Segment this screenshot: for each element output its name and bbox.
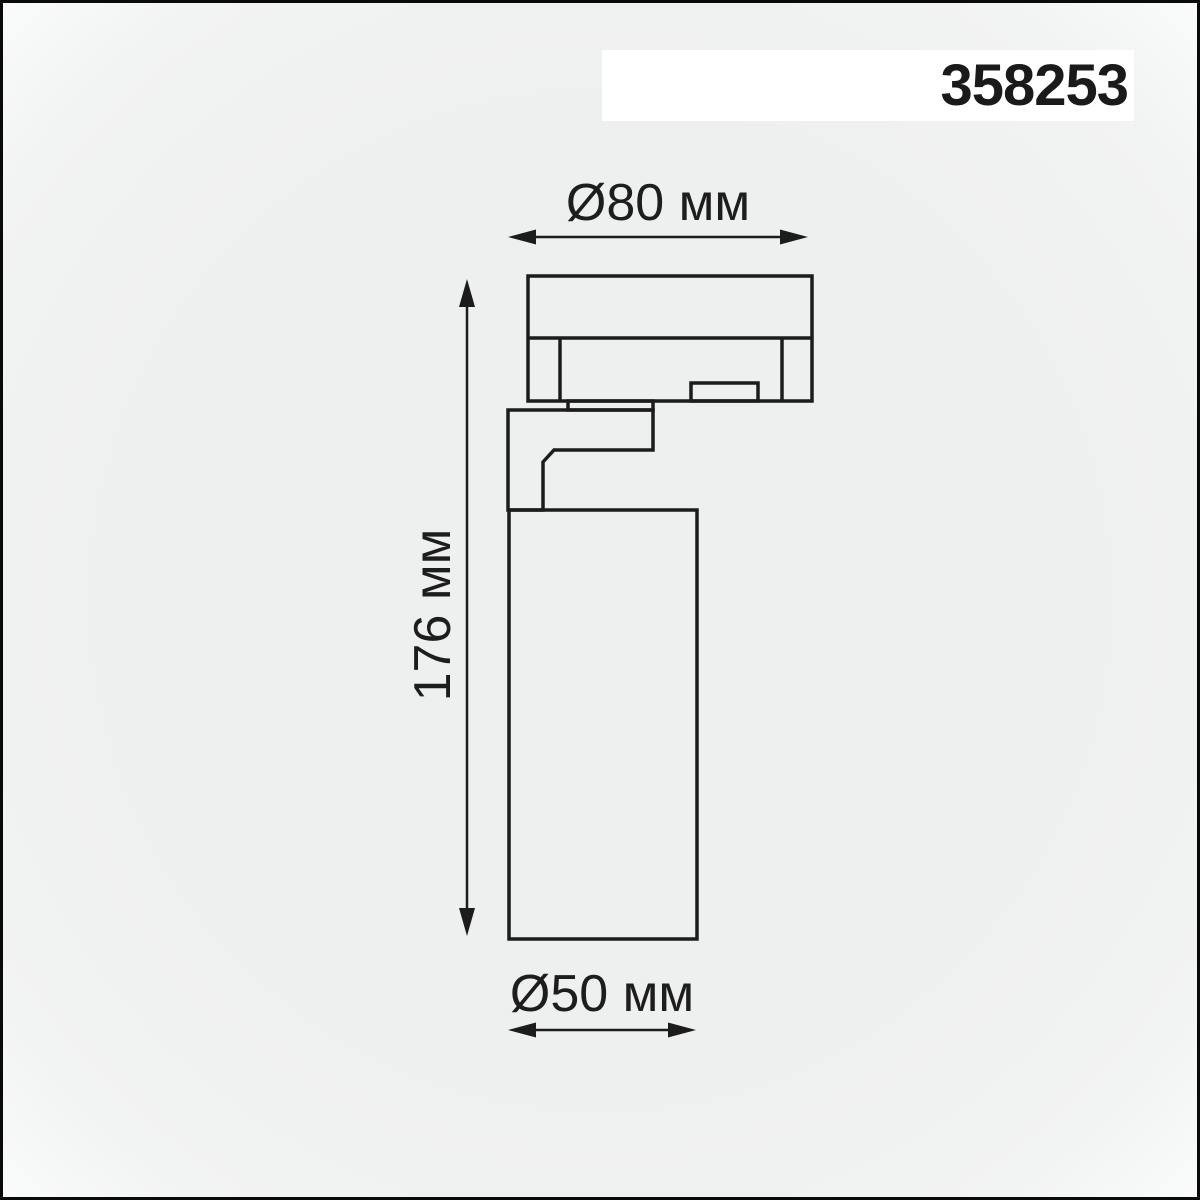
dimension-diagram: Ø80 мм 176 мм Ø50 мм [3,3,1200,1200]
fixture-outline [508,276,812,939]
arrowhead-right-icon [668,1023,696,1038]
product-dimension-sheet: 358253 Ø80 мм [0,0,1200,1200]
arrowhead-left-icon [508,1023,536,1038]
arrowhead-up-icon [459,279,475,307]
adapter-latch [691,383,758,401]
bottom-dimension-label: Ø50 мм [510,965,694,1023]
lamp-body [509,510,697,939]
arrowhead-right-icon [780,230,808,245]
height-dimension: 176 мм [404,279,475,936]
mounting-bracket [508,410,653,510]
arrowhead-left-icon [508,230,536,245]
arrowhead-down-icon [459,908,475,936]
width-dimension: Ø80 мм [508,174,808,245]
height-dimension-label: 176 мм [404,529,462,702]
width-dimension-label: Ø80 мм [566,174,750,232]
bottom-width-dimension: Ø50 мм [508,965,696,1038]
